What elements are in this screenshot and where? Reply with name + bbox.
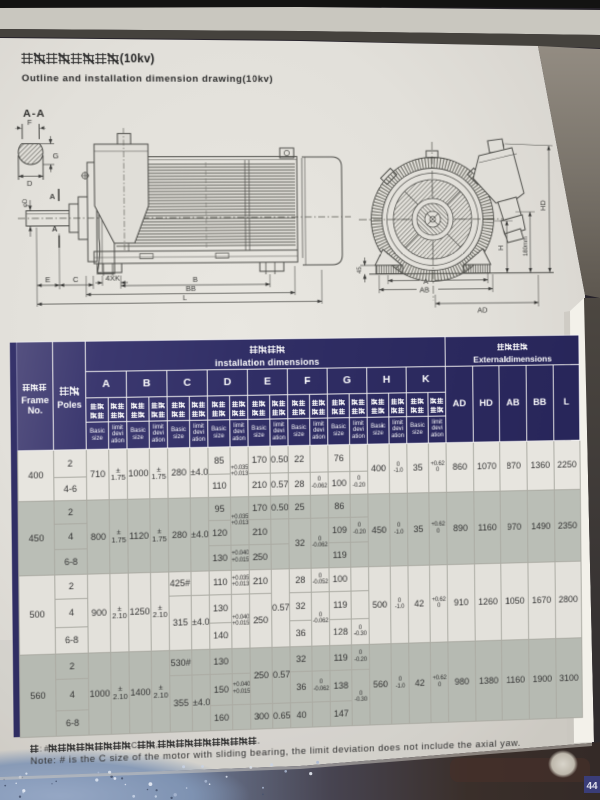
- svg-text:φD: φD: [23, 198, 29, 207]
- svg-text:4XK: 4XK: [105, 274, 120, 283]
- svg-text:C: C: [73, 275, 79, 284]
- svg-text:A: A: [52, 224, 58, 233]
- svg-text:AD: AD: [477, 306, 488, 315]
- svg-text:BB: BB: [186, 284, 196, 293]
- svg-text:45: 45: [357, 266, 363, 273]
- svg-text:A: A: [49, 192, 55, 201]
- svg-text:D: D: [27, 179, 33, 188]
- svg-text:F: F: [27, 118, 32, 127]
- svg-text:H: H: [496, 245, 505, 250]
- svg-text:HD: HD: [539, 200, 548, 211]
- svg-text:G: G: [53, 151, 59, 160]
- svg-text:L: L: [183, 293, 187, 302]
- svg-text:E: E: [45, 275, 50, 284]
- svg-text:B: B: [193, 275, 198, 284]
- svg-text:AB: AB: [420, 285, 430, 294]
- svg-text:180mm: 180mm: [523, 237, 529, 257]
